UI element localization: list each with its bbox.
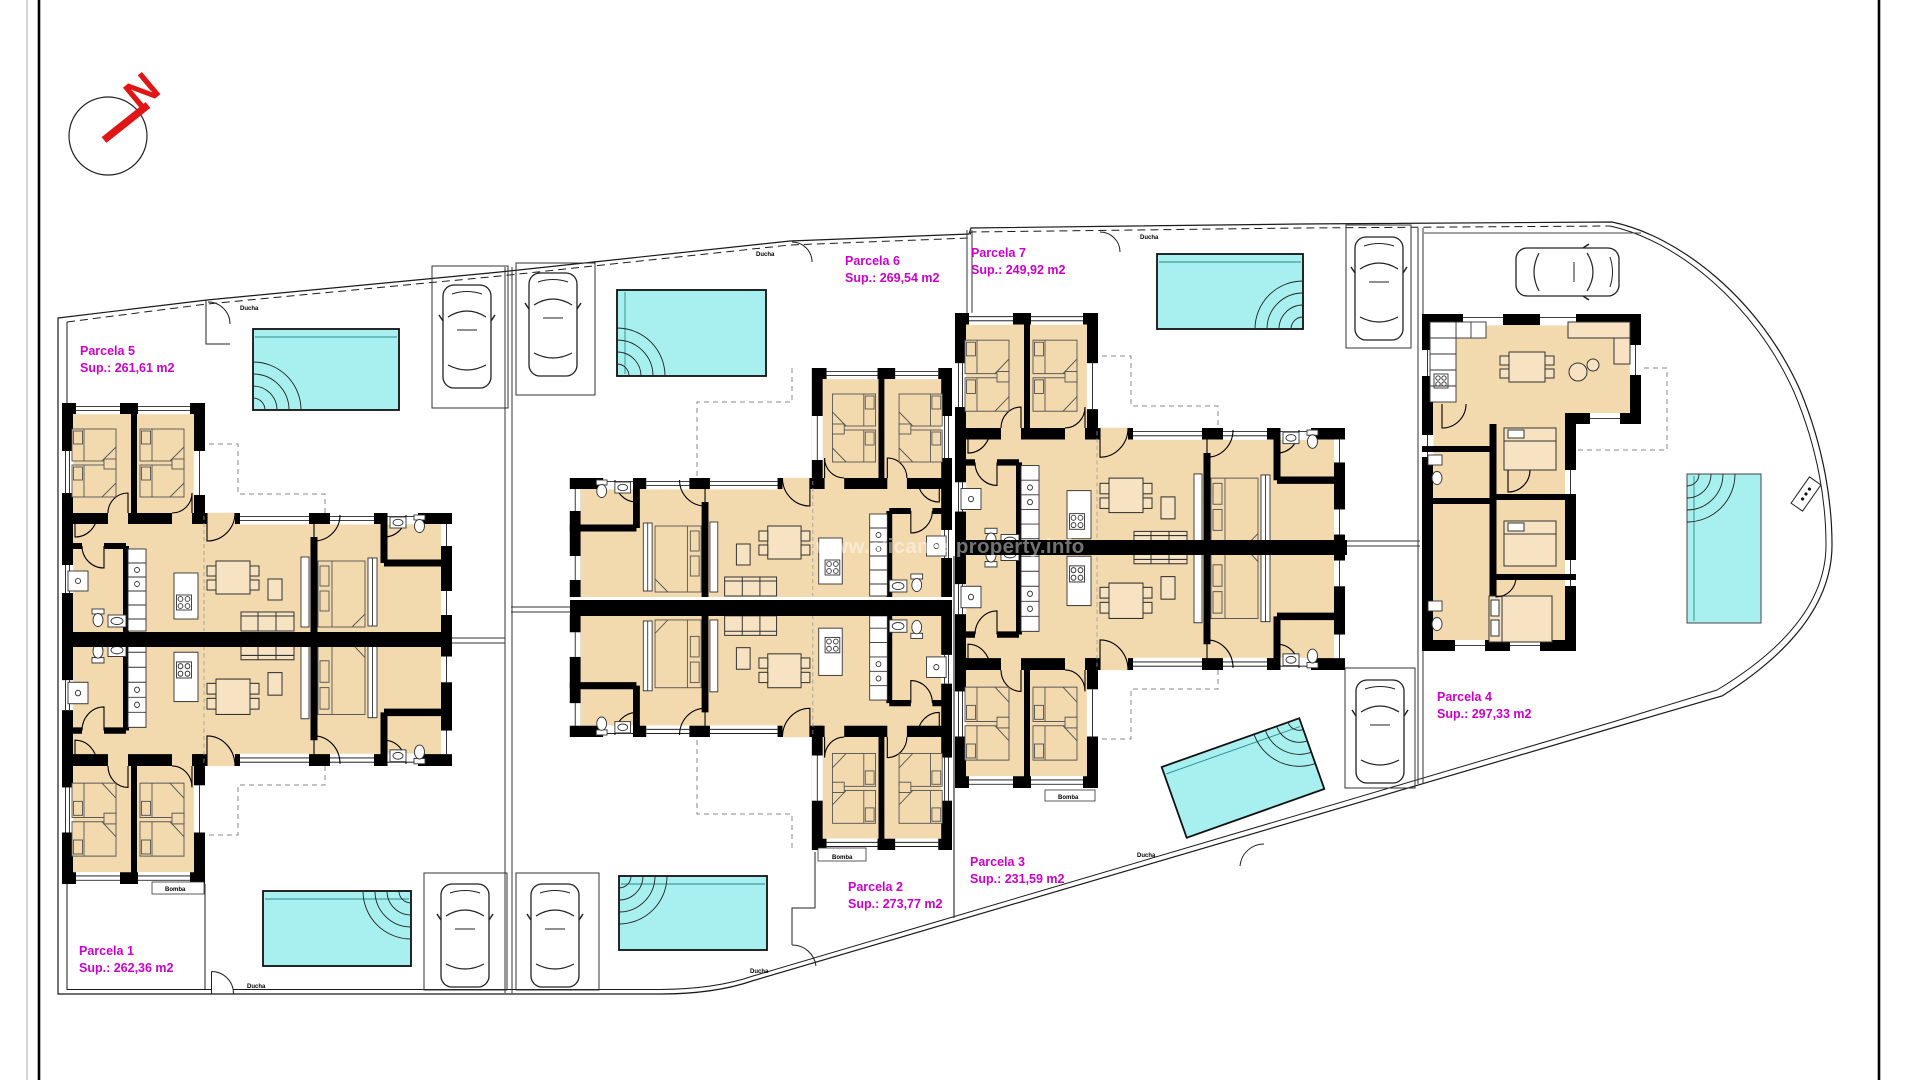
svg-text:Bomba: Bomba xyxy=(832,855,853,861)
svg-text:Ducha: Ducha xyxy=(750,969,769,975)
svg-text:Bomba: Bomba xyxy=(1058,795,1079,801)
svg-text:Ducha: Ducha xyxy=(1137,853,1156,859)
svg-text:Parcela 7: Parcela 7 xyxy=(971,246,1026,260)
svg-text:Ducha: Ducha xyxy=(756,252,775,258)
svg-text:Sup.: 273,77 m2: Sup.: 273,77 m2 xyxy=(848,897,943,911)
svg-text:Parcela 2: Parcela 2 xyxy=(848,880,903,894)
svg-text:Ducha: Ducha xyxy=(247,984,266,990)
svg-text:Parcela 1: Parcela 1 xyxy=(79,944,134,958)
svg-text:Parcela 6: Parcela 6 xyxy=(845,254,900,268)
svg-text:Sup.: 297,33 m2: Sup.: 297,33 m2 xyxy=(1437,707,1532,721)
svg-text:Sup.: 231,59 m2: Sup.: 231,59 m2 xyxy=(970,872,1065,886)
svg-text:Sup.: 269,54 m2: Sup.: 269,54 m2 xyxy=(845,271,940,285)
svg-text:Sup.: 262,36 m2: Sup.: 262,36 m2 xyxy=(79,961,174,975)
svg-text:www.alicante-property.info: www.alicante-property.info xyxy=(815,535,1085,558)
svg-text:Bomba: Bomba xyxy=(165,887,186,893)
svg-text:Parcela 3: Parcela 3 xyxy=(970,855,1025,869)
svg-text:Sup.: 261,61 m2: Sup.: 261,61 m2 xyxy=(80,361,175,375)
svg-text:Ducha: Ducha xyxy=(240,306,259,312)
svg-text:Ducha: Ducha xyxy=(1140,235,1159,241)
svg-text:Parcela 4: Parcela 4 xyxy=(1437,690,1492,704)
svg-text:Sup.: 249,92 m2: Sup.: 249,92 m2 xyxy=(971,263,1066,277)
svg-text:Parcela 5: Parcela 5 xyxy=(80,344,135,358)
